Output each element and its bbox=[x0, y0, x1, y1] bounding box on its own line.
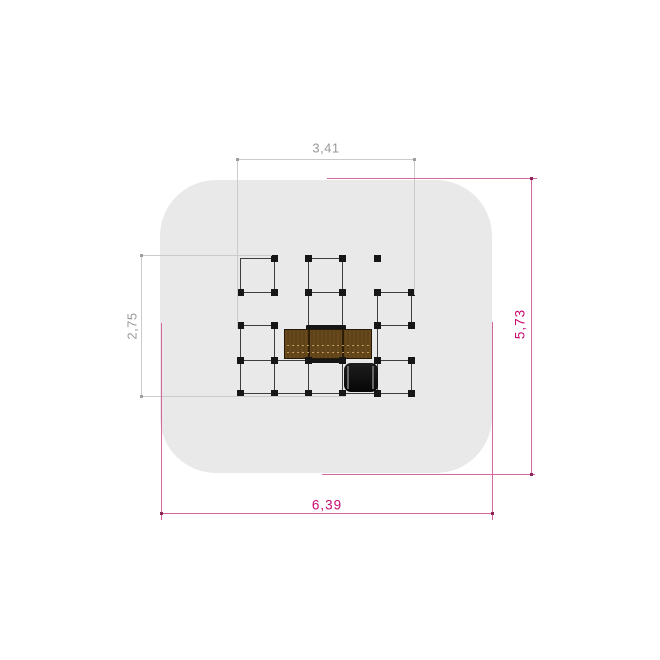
post bbox=[271, 289, 278, 296]
frame-line bbox=[274, 360, 275, 394]
frame-line bbox=[377, 326, 378, 361]
dimension-endpoint-dot bbox=[140, 254, 143, 257]
frame-line bbox=[342, 292, 343, 326]
frame-line bbox=[342, 360, 343, 394]
dimension-extension-line-area-width bbox=[161, 323, 162, 520]
dimension-line-structure-width bbox=[238, 159, 415, 160]
frame-line bbox=[240, 360, 241, 394]
post bbox=[374, 322, 381, 329]
dimension-extension-line-structure-height bbox=[142, 255, 273, 256]
dimension-extension-line-area-height bbox=[322, 474, 535, 475]
frame-line bbox=[240, 325, 275, 326]
frame-line bbox=[309, 258, 343, 259]
post bbox=[374, 357, 381, 364]
dimension-extension-line-structure-width bbox=[414, 159, 415, 295]
frame-line bbox=[377, 325, 411, 326]
post bbox=[305, 357, 312, 364]
frame-line bbox=[309, 292, 343, 293]
plank-gap-dashes bbox=[287, 345, 370, 346]
dimension-extension-line-area-height bbox=[327, 178, 537, 179]
frame-line bbox=[411, 360, 412, 394]
post bbox=[374, 390, 381, 397]
post bbox=[408, 390, 415, 397]
dimension-label-area-height: 5,73 bbox=[513, 308, 528, 338]
frame-line bbox=[240, 326, 241, 361]
frame-line bbox=[377, 292, 378, 326]
plank-divider bbox=[308, 329, 310, 359]
post bbox=[339, 357, 346, 364]
frame-line bbox=[308, 360, 309, 394]
tunnel-rib bbox=[372, 366, 374, 389]
post bbox=[408, 357, 415, 364]
post bbox=[339, 289, 346, 296]
post bbox=[339, 255, 346, 262]
frame-line bbox=[274, 258, 275, 292]
dimension-label-structure-width: 3,41 bbox=[312, 141, 339, 156]
dimension-line-area-height bbox=[531, 178, 532, 474]
dimension-line-structure-height bbox=[141, 255, 142, 397]
post bbox=[271, 322, 278, 329]
dimension-endpoint-dot bbox=[140, 395, 143, 398]
post bbox=[374, 289, 381, 296]
site-plan-canvas: 3,41 2,75 5,73 6,39 bbox=[0, 0, 660, 660]
dimension-endpoint-dot bbox=[530, 177, 533, 180]
dimension-endpoint-dot bbox=[491, 512, 494, 515]
tunnel-rib bbox=[347, 366, 349, 389]
post bbox=[408, 322, 415, 329]
dimension-line-area-width bbox=[161, 513, 493, 514]
frame-line bbox=[308, 292, 309, 326]
frame-line bbox=[377, 292, 411, 293]
plank-gap-dashes bbox=[287, 352, 370, 353]
frame-line bbox=[377, 360, 411, 361]
frame-line bbox=[240, 393, 411, 394]
frame-line bbox=[240, 258, 275, 259]
post bbox=[305, 289, 312, 296]
post bbox=[271, 357, 278, 364]
frame-line bbox=[411, 292, 412, 326]
plank-divider bbox=[342, 329, 344, 359]
dimension-extension-line-structure-width bbox=[237, 159, 238, 329]
frame-line bbox=[308, 258, 309, 292]
frame-line bbox=[240, 258, 241, 292]
post bbox=[374, 255, 381, 262]
post bbox=[305, 255, 312, 262]
frame-line bbox=[240, 292, 275, 293]
frame-line bbox=[274, 326, 275, 361]
post bbox=[271, 255, 278, 262]
wooden-bridge-platform bbox=[284, 329, 373, 359]
dimension-label-area-width: 6,39 bbox=[312, 497, 342, 512]
dimension-extension-line-area-width bbox=[492, 322, 493, 520]
post bbox=[237, 357, 244, 364]
dimension-extension-line-structure-height bbox=[142, 396, 347, 397]
frame-line bbox=[342, 258, 343, 292]
dimension-label-structure-height: 2,75 bbox=[125, 312, 140, 339]
dimension-endpoint-dot bbox=[236, 158, 239, 161]
dimension-endpoint-dot bbox=[530, 473, 533, 476]
dimension-endpoint-dot bbox=[413, 158, 416, 161]
dimension-endpoint-dot bbox=[160, 512, 163, 515]
